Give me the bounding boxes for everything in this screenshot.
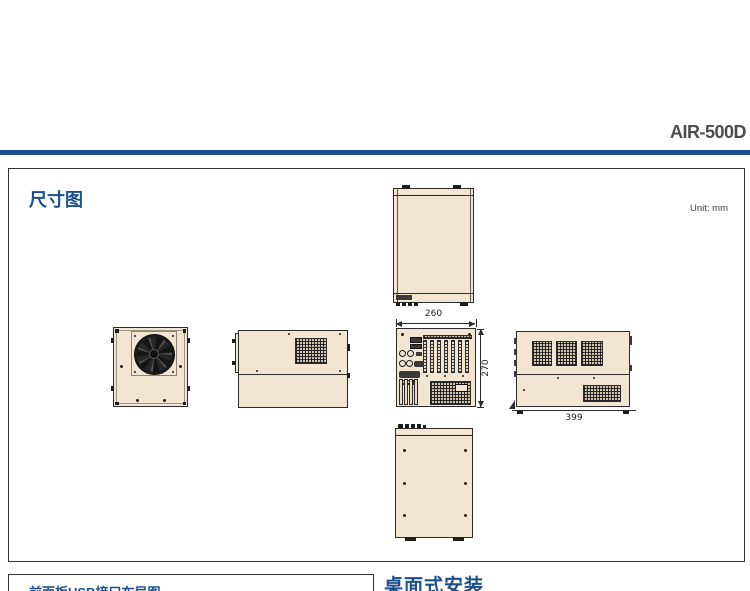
side-view-left-drawing (238, 330, 348, 408)
screw-dot (120, 365, 123, 368)
bracket-tab (232, 361, 235, 365)
fan-screw (134, 371, 136, 373)
vga-connector (399, 371, 420, 378)
edge-tab (347, 373, 350, 378)
ps2-connector (399, 350, 406, 357)
fan-screw (172, 335, 174, 337)
top-view-side-line (397, 189, 398, 302)
edge-tab (187, 338, 190, 343)
screw-dot (163, 399, 166, 402)
dim-height-label: 270 (476, 356, 496, 380)
slot-bracket-band (423, 335, 472, 339)
screw-dot (339, 370, 341, 372)
slot-cover (399, 379, 403, 405)
foot (405, 537, 416, 541)
expansion-slot (458, 340, 462, 373)
rear-connector-block (396, 295, 412, 300)
section-title-desktop-mount: 桌面式安装 (384, 571, 484, 591)
chassis-seam-line (517, 374, 629, 375)
foot (460, 302, 468, 306)
edge-tab (347, 344, 350, 351)
expansion-slot (451, 340, 455, 373)
connector-mark (398, 424, 403, 428)
slot-cover (414, 379, 418, 405)
edge-tab (514, 338, 518, 344)
corner-screw (115, 329, 119, 333)
product-title: AIR-500D (670, 122, 746, 143)
expansion-slot (444, 340, 448, 373)
base-line (512, 410, 636, 411)
rear-view-drawing (396, 328, 476, 407)
vent-grille (532, 341, 552, 366)
datasheet-page: AIR-500D 尺寸图 Unit: mm 260 (0, 0, 750, 591)
screw-dot (136, 399, 139, 402)
edge-tab (629, 336, 632, 345)
screw-dot (179, 365, 182, 368)
screw-dot (288, 333, 290, 335)
ps2-connector (407, 350, 414, 357)
mount-bump (453, 185, 461, 189)
screw-dot (557, 377, 559, 379)
small-port (416, 352, 422, 356)
vent-grille (581, 341, 603, 366)
screw-dot (523, 389, 525, 391)
connector-mark (417, 424, 421, 428)
connector-mark (396, 302, 400, 306)
connector-mark (405, 424, 409, 428)
screw-dot (403, 449, 406, 452)
screw-dot (403, 482, 406, 485)
edge-tab (514, 349, 518, 355)
connector-mark (411, 424, 415, 428)
psu-grille (430, 381, 471, 405)
bottom-view-drawing (395, 428, 473, 538)
connector-mark (402, 302, 406, 306)
expansion-slot (430, 340, 434, 373)
dim-tick (396, 319, 397, 327)
mount-bracket (235, 333, 239, 373)
vent-grille (556, 341, 577, 366)
screw-dot (339, 333, 341, 335)
dim-width-label: 260 (393, 309, 474, 319)
chassis-seam-line (239, 374, 347, 375)
fan-screw (172, 371, 174, 373)
screw-dot (464, 482, 467, 485)
screw-dot (464, 514, 467, 517)
screw-dot (593, 377, 595, 379)
section-title-dimensions: 尺寸图 (29, 186, 83, 212)
expansion-slot (423, 340, 427, 373)
dim-tick (476, 319, 477, 327)
fan-screw (134, 335, 136, 337)
corner-screw (183, 329, 187, 333)
screw-dot (444, 375, 446, 377)
dim-tick (477, 407, 484, 408)
expansion-slot (437, 340, 441, 373)
round-connector (399, 360, 406, 367)
usb-port (410, 344, 422, 350)
bracket-tab (232, 339, 235, 343)
round-connector (406, 360, 413, 367)
unit-label: Unit: mm (690, 203, 728, 214)
edge-tab (514, 371, 518, 377)
slot-cover (404, 379, 408, 405)
foot (453, 537, 464, 541)
expansion-slot (465, 340, 469, 373)
note-text: 前面板USB接口布局图 (29, 582, 160, 591)
vent-grille (583, 385, 621, 402)
psu-switch (455, 384, 468, 392)
edge-tab (629, 365, 632, 371)
screw-dot (462, 375, 464, 377)
edge-tab (514, 360, 518, 366)
bottom-view-edge-line (396, 435, 472, 436)
screw-dot (464, 449, 467, 452)
header-divider (0, 150, 750, 155)
stand-support (509, 400, 515, 409)
top-view-side-line (470, 189, 471, 302)
screw-dot (401, 333, 404, 336)
connector-mark (414, 302, 418, 306)
screw-dot (403, 514, 406, 517)
vent-grille (295, 338, 327, 364)
edge-tab (187, 386, 190, 391)
dim-tick (477, 329, 484, 330)
fan-hub (149, 349, 159, 359)
front-panel-note-box: 前面板USB接口布局图 (8, 574, 374, 591)
side-view-right-drawing: 399 (516, 331, 630, 407)
screw-dot (426, 375, 428, 377)
connector-mark (408, 302, 412, 306)
usb-port (410, 337, 422, 343)
dim-depth-label: 399 (517, 413, 631, 423)
corner-screw (115, 402, 119, 406)
fan-side-view-drawing (113, 327, 188, 407)
edge-tab (111, 338, 114, 343)
connector-mark (423, 425, 426, 428)
top-view-edge-line (394, 293, 473, 294)
top-view-edge-line (394, 195, 473, 196)
corner-screw (183, 402, 187, 406)
dim-width-line (396, 323, 475, 324)
screw-dot (256, 370, 258, 372)
slot-cover (409, 379, 413, 405)
mount-bump (402, 185, 410, 189)
edge-tab (111, 386, 114, 391)
top-view-drawing (393, 188, 474, 303)
